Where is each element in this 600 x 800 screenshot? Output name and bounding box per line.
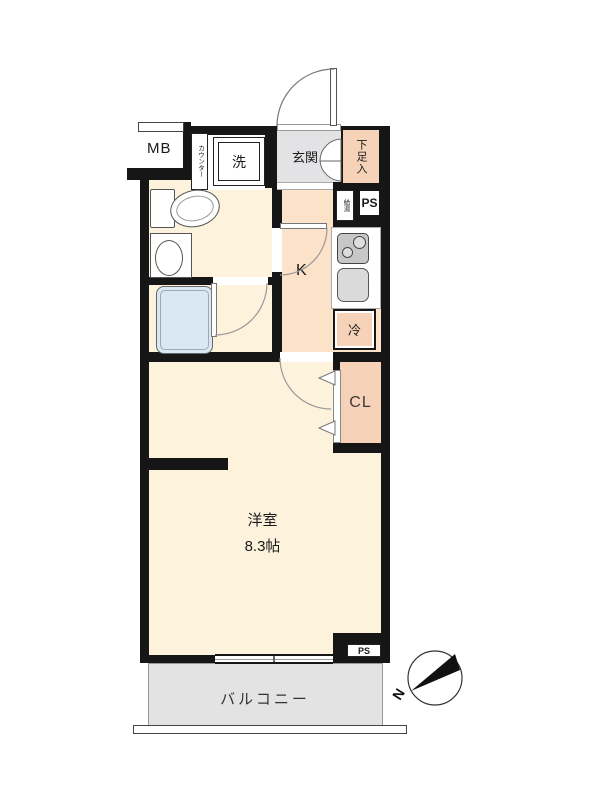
washing-machine-box: 洗: [213, 137, 265, 186]
entrance-door-swing: [277, 69, 334, 126]
washroom-door-opening: [272, 228, 282, 272]
closet-label: CL: [349, 394, 371, 412]
entrance-label: 玄関: [279, 147, 331, 166]
pipe-space-top-box: PS: [358, 189, 381, 217]
pipe-space-bottom-box: PS: [347, 644, 381, 657]
water-heater-box: 給湯: [336, 190, 354, 221]
wall: [127, 168, 191, 180]
floor-plan: MB カウンター 洗 玄関 下足入 給湯 PS 冷 K CL: [0, 0, 600, 800]
shoe-cabinet-label: 下足入: [353, 139, 369, 175]
refrigerator-space: 冷: [333, 309, 376, 350]
refrigerator-label: 冷: [348, 320, 361, 339]
toilet-bowl-inner: [174, 192, 216, 224]
bathroom-door-leaf: [211, 283, 217, 337]
main-room-name: 洋室: [200, 508, 325, 534]
meter-box-label: MB: [147, 140, 172, 157]
balcony-label: バルコニー: [160, 688, 370, 709]
wall: [140, 655, 215, 663]
wall: [140, 180, 149, 663]
bathtub-inner-rim: [160, 290, 209, 350]
water-heater-label: 給湯: [340, 199, 350, 212]
shoe-cabinet: 下足入: [341, 128, 381, 185]
washing-machine-inner: 洗: [218, 142, 260, 181]
wall: [272, 272, 282, 360]
stove-burner-large: [353, 236, 366, 249]
kitchen-label: K: [296, 262, 307, 280]
compass-north-label: N: [389, 686, 408, 703]
wall-stub: [148, 458, 228, 470]
compass-needle: [411, 654, 460, 691]
kitchen-sink: [337, 268, 369, 302]
washbasin-bowl: [155, 240, 183, 276]
closet-folding-door: [333, 370, 341, 443]
stove: [337, 233, 369, 264]
pipe-space-bottom-label: PS: [358, 646, 370, 656]
wall: [140, 277, 213, 285]
entrance-door-leaf: [330, 68, 337, 126]
balcony-window: [215, 654, 333, 664]
wall: [272, 188, 282, 228]
window-center-tick: [273, 656, 275, 662]
bathtub: [156, 286, 213, 354]
counter-strip: カウンター: [191, 133, 208, 190]
stove-burner-small: [342, 247, 353, 258]
closet: CL: [340, 362, 381, 443]
entrance-step: [277, 182, 333, 190]
room-door-opening: [280, 352, 333, 362]
building-edge-line: [133, 725, 407, 734]
bathroom-door-opening: [213, 277, 268, 285]
counter-label: カウンター: [195, 145, 205, 178]
washroom-door-leaf: [280, 223, 327, 229]
compass-circle: [408, 651, 462, 705]
wall: [268, 277, 282, 285]
wall: [265, 126, 277, 188]
washing-machine-label: 洗: [232, 152, 246, 172]
meter-box-door: [138, 122, 184, 132]
pipe-space-top-label: PS: [361, 196, 377, 210]
main-room-size: 8.3帖: [200, 534, 325, 560]
main-room-label: 洋室 8.3帖: [200, 508, 325, 559]
